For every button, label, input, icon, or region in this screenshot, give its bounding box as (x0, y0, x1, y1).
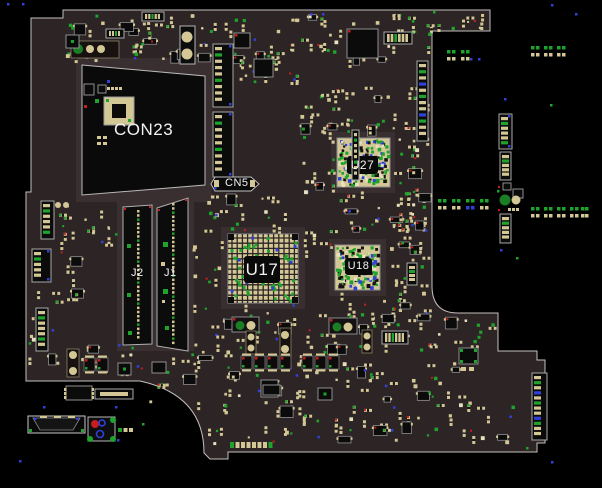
component (41, 201, 54, 239)
component (407, 263, 417, 285)
label-con23[interactable]: CON23 (114, 121, 173, 138)
component (107, 80, 110, 83)
component (232, 317, 259, 332)
component (329, 318, 357, 334)
component (459, 348, 478, 364)
component (503, 183, 511, 190)
component (302, 354, 313, 372)
component (163, 242, 168, 247)
component (500, 214, 511, 243)
label-u27[interactable]: U27 (347, 156, 378, 174)
component-edge-conn[interactable] (532, 373, 547, 440)
component (127, 244, 131, 248)
component (246, 331, 256, 354)
component (382, 331, 408, 344)
component (417, 61, 428, 141)
component (347, 29, 378, 58)
component (55, 202, 61, 208)
component (499, 114, 512, 149)
component (362, 330, 372, 353)
component (328, 354, 339, 372)
label-j2[interactable]: J2 (131, 268, 144, 279)
component (36, 308, 48, 351)
component-float-pad[interactable] (87, 417, 116, 442)
component (234, 33, 250, 48)
component (106, 29, 124, 38)
component (32, 249, 51, 282)
component (500, 195, 511, 206)
label-cn5[interactable]: CN5 (225, 178, 249, 189)
component (163, 289, 168, 294)
label-u17[interactable]: U17 (244, 256, 280, 283)
component (315, 354, 326, 372)
component (63, 202, 69, 208)
component (64, 386, 94, 400)
component (254, 354, 265, 372)
component (498, 209, 500, 211)
component (165, 326, 169, 330)
component (267, 354, 278, 372)
component (512, 196, 521, 205)
component (84, 84, 94, 95)
pcb-board-canvas[interactable] (0, 0, 602, 488)
component (162, 300, 165, 303)
component (500, 152, 511, 180)
component (280, 354, 291, 372)
component (97, 356, 108, 374)
component (241, 354, 252, 372)
label-u18[interactable]: U18 (345, 258, 372, 275)
component (180, 26, 195, 64)
component (118, 428, 133, 432)
component (84, 356, 95, 374)
component (318, 388, 332, 400)
component (67, 349, 79, 377)
component (66, 35, 79, 48)
component (95, 99, 99, 103)
component (84, 105, 87, 108)
boardview-stage: CON23 CN5 U27 U17 U18 J2 J1 (0, 0, 602, 488)
component (280, 328, 291, 356)
component (384, 32, 412, 44)
component (263, 385, 280, 395)
component (142, 12, 164, 21)
component (254, 59, 273, 77)
component (118, 363, 131, 375)
component (95, 389, 133, 399)
label-j1[interactable]: J1 (164, 268, 177, 279)
component (128, 331, 132, 335)
component-slot-a[interactable] (213, 44, 233, 107)
component (161, 262, 165, 266)
component (127, 293, 131, 297)
component-float-conn[interactable] (28, 416, 85, 434)
component (498, 186, 500, 188)
component-slot-b[interactable] (213, 112, 233, 177)
component (152, 362, 166, 373)
component (98, 85, 106, 93)
component (508, 208, 519, 211)
